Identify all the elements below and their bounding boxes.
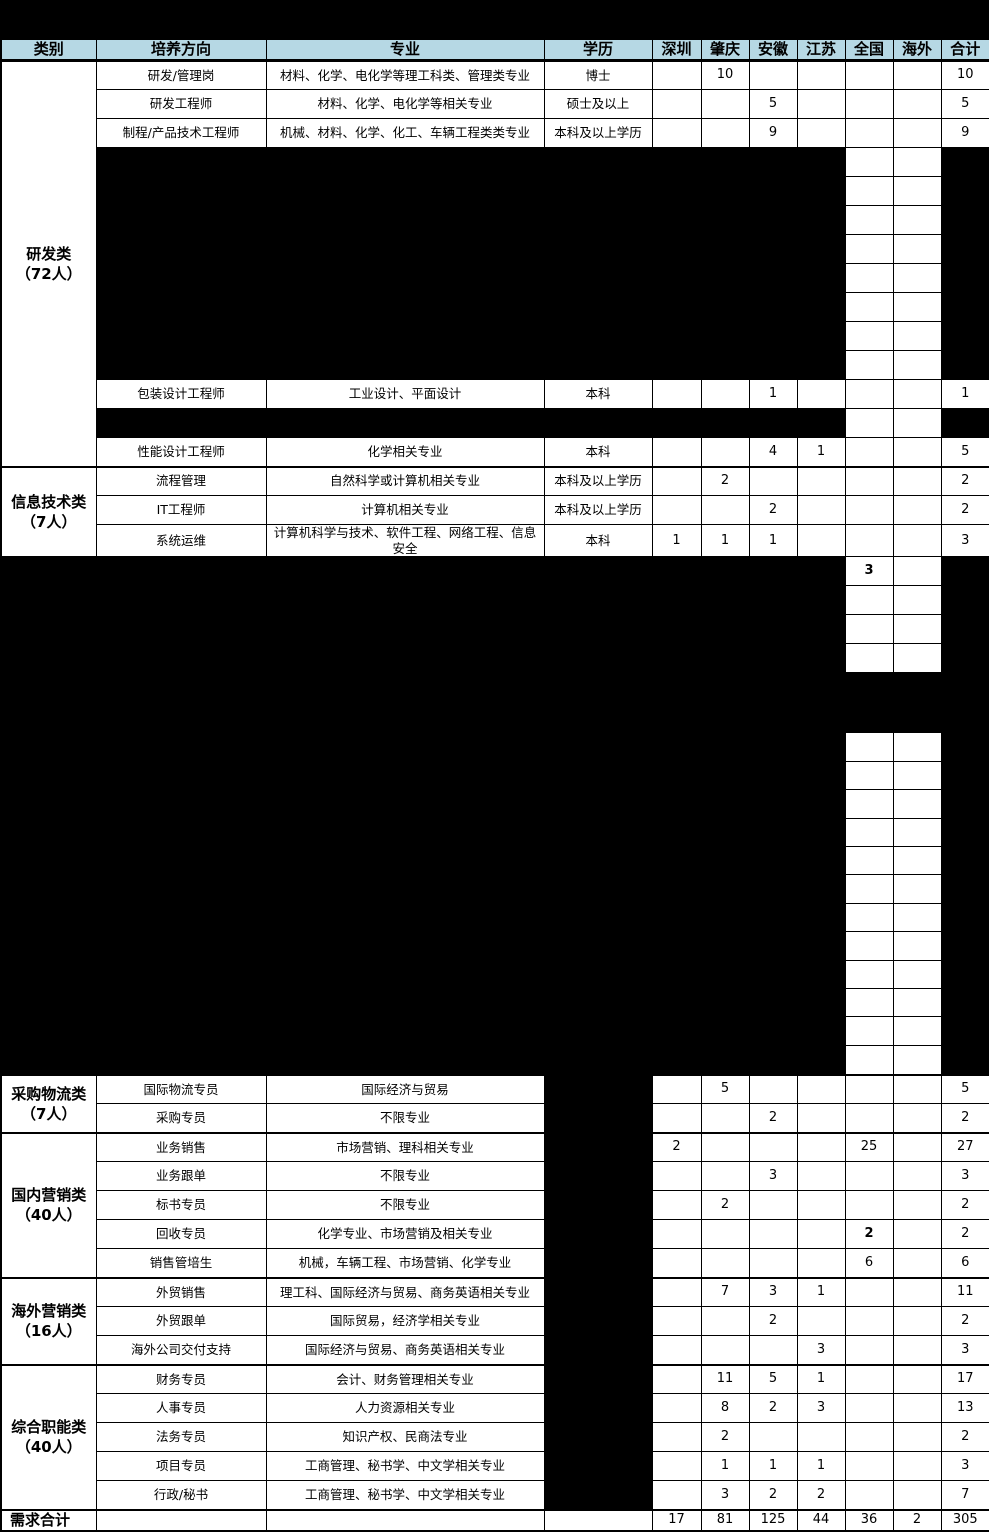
empty-cell	[846, 762, 893, 790]
table-row: 包装设计工程师 工业设计、平面设计 本科 1 1	[1, 380, 989, 409]
cell-total: 9	[941, 119, 989, 148]
cell-anhui	[749, 1133, 797, 1162]
cell-anhui: 5	[749, 1365, 797, 1394]
empty-cell	[894, 819, 941, 847]
table-row: 制程/产品技术工程师 机械、材料、化学、化工、车辆工程类类专业 本科及以上学历 …	[1, 119, 989, 148]
empty-cell	[894, 790, 941, 818]
category-label: 采购物流类	[4, 1084, 94, 1104]
header-cell-anhui: 安徽	[749, 39, 797, 61]
totals-jiangsu: 44	[797, 1510, 845, 1531]
header-cell-degree: 学历	[544, 39, 652, 61]
empty-cell	[266, 1510, 544, 1531]
cell-anhui: 5	[749, 90, 797, 119]
totals-shenzhen: 17	[652, 1510, 701, 1531]
cell-jiangsu	[797, 1191, 845, 1220]
cell-nationwide	[845, 61, 893, 90]
cell-nationwide	[845, 1394, 893, 1423]
table-row: IT工程师 计算机相关专业 本科及以上学历 2 2	[1, 496, 989, 525]
cell-jiangsu	[797, 496, 845, 525]
cell-direction: 法务专员	[96, 1423, 266, 1452]
cell-nationwide	[845, 525, 893, 557]
cell-anhui	[749, 467, 797, 496]
cell-major: 自然科学或计算机相关专业	[266, 467, 544, 496]
empty-cell	[846, 733, 893, 761]
cell-major: 不限专业	[266, 1162, 544, 1191]
cell-jiangsu	[797, 380, 845, 409]
cell-nationwide	[845, 1423, 893, 1452]
cell-major: 材料、化学、电化学等相关专业	[266, 90, 544, 119]
cell-total: 3	[941, 525, 989, 557]
cell-overseas	[893, 119, 941, 148]
cell-overseas	[893, 1452, 941, 1481]
table-row: 采购专员 不限专业 2 2	[1, 1104, 989, 1133]
cell-major: 国际经济与贸易	[266, 1075, 544, 1104]
cell-nationwide	[845, 438, 893, 467]
nationwide-value-cell: 3	[846, 557, 893, 586]
table-row: 研发类 （72人） 研发/管理岗 材料、化学、电化学等理工科类、管理类专业 博士…	[1, 61, 989, 90]
cell-overseas	[893, 1394, 941, 1423]
empty-cell	[846, 264, 893, 293]
cell-total: 2	[941, 1191, 989, 1220]
cell-direction: 采购专员	[96, 1104, 266, 1133]
cell-zhaoqing: 2	[701, 467, 749, 496]
cell-total: 2	[941, 1307, 989, 1336]
header-cell-total: 合计	[941, 39, 989, 61]
category-label: 信息技术类	[4, 492, 94, 512]
empty-cell	[894, 644, 941, 673]
empty-cell	[894, 293, 941, 322]
cell-direction: 国际物流专员	[96, 1075, 266, 1104]
cell-total: 2	[941, 467, 989, 496]
redacted-degree-cell	[544, 1423, 652, 1452]
table-row: 行政/秘书 工商管理、秘书学、中文学相关专业 3 2 2 7	[1, 1481, 989, 1510]
table-row: 海外公司交付支持 国际经济与贸易、商务英语相关专业 3 3	[1, 1336, 989, 1365]
header-cell-shenzhen: 深圳	[652, 39, 701, 61]
empty-cell	[846, 989, 893, 1017]
cell-shenzhen	[652, 119, 701, 148]
cell-direction: 财务专员	[96, 1365, 266, 1394]
cell-direction: IT工程师	[96, 496, 266, 525]
category-cell-it: 信息技术类 （7人）	[1, 467, 96, 557]
cell-nationwide	[845, 467, 893, 496]
cell-shenzhen	[652, 380, 701, 409]
header-cell-nationwide: 全国	[845, 39, 893, 61]
category-count: （72人）	[4, 264, 94, 284]
redacted-degree-cell	[544, 1481, 652, 1510]
category-cell-overseas-sales: 海外营销类 （16人）	[1, 1278, 96, 1365]
nationwide-column-stripe: 3	[845, 557, 893, 1075]
cell-overseas	[893, 380, 941, 409]
header-cell-category: 类别	[1, 39, 96, 61]
empty-cell	[544, 1510, 652, 1531]
cell-degree: 本科	[544, 438, 652, 467]
cell-overseas	[893, 496, 941, 525]
cell-shenzhen	[652, 1162, 701, 1191]
cell-degree: 硕士及以上	[544, 90, 652, 119]
cell-jiangsu	[797, 525, 845, 557]
cell-total: 2	[941, 1423, 989, 1452]
category-label: 海外营销类	[4, 1301, 94, 1321]
cell-degree: 本科	[544, 525, 652, 557]
cell-zhaoqing: 5	[701, 1075, 749, 1104]
cell-direction: 系统运维	[96, 525, 266, 557]
cell-shenzhen	[652, 1336, 701, 1365]
empty-cell	[894, 148, 941, 177]
empty-cell	[894, 264, 941, 293]
cell-anhui	[749, 1423, 797, 1452]
category-label: 研发类	[4, 244, 94, 264]
redacted-degree-cell	[544, 1249, 652, 1278]
overseas-column-stripe	[893, 557, 941, 1075]
empty-cell	[894, 847, 941, 875]
cell-zhaoqing	[701, 1104, 749, 1133]
table-row: 回收专员 化学专业、市场营销及相关专业 2 2	[1, 1220, 989, 1249]
redacted-band	[1, 148, 989, 380]
cell-shenzhen	[652, 1307, 701, 1336]
empty-cell	[894, 615, 941, 644]
cell-total: 3	[941, 1336, 989, 1365]
redacted-block	[941, 409, 989, 438]
empty-cell	[894, 1046, 941, 1073]
cell-jiangsu	[797, 1220, 845, 1249]
cell-jiangsu: 1	[797, 1452, 845, 1481]
cell-anhui	[749, 1220, 797, 1249]
cell-major: 不限专业	[266, 1191, 544, 1220]
cell-jiangsu	[797, 467, 845, 496]
empty-cell	[894, 762, 941, 790]
cell-total: 2	[941, 1220, 989, 1249]
cell-direction: 销售管培生	[96, 1249, 266, 1278]
cell-nationwide	[845, 1452, 893, 1481]
cell-shenzhen	[652, 1365, 701, 1394]
cell-major: 机械，车辆工程、市场营销、化学专业	[266, 1249, 544, 1278]
cell-major: 人力资源相关专业	[266, 1394, 544, 1423]
table-row: 外贸跟单 国际贸易，经济学相关专业 2 2	[1, 1307, 989, 1336]
table-row: 信息技术类 （7人） 流程管理 自然科学或计算机相关专业 本科及以上学历 2 2	[1, 467, 989, 496]
empty-cell	[846, 961, 893, 989]
cell-overseas	[893, 61, 941, 90]
cell-degree: 本科及以上学历	[544, 467, 652, 496]
cell-jiangsu	[797, 119, 845, 148]
empty-cell	[894, 351, 941, 379]
totals-zhaoqing: 81	[701, 1510, 749, 1531]
cell-jiangsu: 1	[797, 438, 845, 467]
empty-cell	[846, 904, 893, 932]
empty-cell	[894, 875, 941, 903]
cell-shenzhen	[652, 438, 701, 467]
empty-cell	[846, 875, 893, 903]
empty-cell	[846, 790, 893, 818]
cell-zhaoqing	[701, 1162, 749, 1191]
empty-cell	[894, 733, 941, 761]
empty-cell	[846, 819, 893, 847]
empty-cell	[846, 932, 893, 960]
category-cell-rnd: 研发类 （72人）	[1, 61, 96, 467]
cell-anhui	[749, 1249, 797, 1278]
cell-degree: 本科	[544, 380, 652, 409]
empty-cell	[894, 557, 941, 586]
cell-direction: 研发/管理岗	[96, 61, 266, 90]
category-count: （40人）	[4, 1205, 94, 1225]
cell-shenzhen	[652, 496, 701, 525]
cell-shenzhen	[652, 1220, 701, 1249]
empty-cell	[894, 932, 941, 960]
cell-nationwide	[845, 1191, 893, 1220]
cell-major: 市场营销、理科相关专业	[266, 1133, 544, 1162]
cell-total: 5	[941, 90, 989, 119]
cell-major: 化学专业、市场营销及相关专业	[266, 1220, 544, 1249]
header-cell-overseas: 海外	[893, 39, 941, 61]
redacted-degree-cell	[544, 1452, 652, 1481]
totals-overseas: 2	[893, 1510, 941, 1531]
redacted-degree-cell	[544, 1133, 652, 1162]
cell-total: 7	[941, 1481, 989, 1510]
cell-shenzhen	[652, 1394, 701, 1423]
cell-direction: 业务跟单	[96, 1162, 266, 1191]
cell-nationwide	[845, 1162, 893, 1191]
cell-jiangsu	[797, 61, 845, 90]
cell-overseas	[893, 1104, 941, 1133]
cell-nationwide	[845, 409, 893, 438]
cell-total: 11	[941, 1278, 989, 1307]
table-row: 海外营销类 （16人） 外贸销售 理工科、国际经济与贸易、商务英语相关专业 7 …	[1, 1278, 989, 1307]
empty-cell	[846, 847, 893, 875]
cell-zhaoqing	[701, 1307, 749, 1336]
cell-jiangsu: 3	[797, 1336, 845, 1365]
cell-jiangsu	[797, 1075, 845, 1104]
cell-overseas	[893, 438, 941, 467]
totals-anhui: 125	[749, 1510, 797, 1531]
cell-zhaoqing: 10	[701, 61, 749, 90]
cell-total: 5	[941, 1075, 989, 1104]
cell-anhui: 1	[749, 1452, 797, 1481]
cell-major: 工商管理、秘书学、中文学相关专业	[266, 1481, 544, 1510]
cell-total: 17	[941, 1365, 989, 1394]
cell-anhui: 2	[749, 1307, 797, 1336]
table-row: 标书专员 不限专业 2 2	[1, 1191, 989, 1220]
redacted-degree-cell	[544, 1162, 652, 1191]
cell-anhui: 2	[749, 1481, 797, 1510]
cell-overseas	[893, 90, 941, 119]
cell-direction: 外贸跟单	[96, 1307, 266, 1336]
cell-jiangsu	[797, 1133, 845, 1162]
cell-zhaoqing: 1	[701, 1452, 749, 1481]
table-row: 法务专员 知识产权、民商法专业 2 2	[1, 1423, 989, 1452]
empty-cell	[846, 351, 893, 379]
category-cell-functions: 综合职能类 （40人）	[1, 1365, 96, 1510]
cell-zhaoqing: 1	[701, 525, 749, 557]
cell-nationwide	[845, 90, 893, 119]
cell-shenzhen	[652, 1191, 701, 1220]
cell-anhui: 2	[749, 1104, 797, 1133]
nationwide-column-stripe	[845, 148, 893, 380]
cell-overseas	[893, 525, 941, 557]
empty-cell	[96, 1510, 266, 1531]
empty-cell	[846, 177, 893, 206]
cell-nationwide: 2	[845, 1220, 893, 1249]
cell-anhui	[749, 1191, 797, 1220]
cell-major: 化学相关专业	[266, 438, 544, 467]
empty-cell	[894, 177, 941, 206]
empty-cell	[846, 293, 893, 322]
cell-anhui: 1	[749, 380, 797, 409]
cell-major: 计算机科学与技术、软件工程、网络工程、信息安全	[266, 525, 544, 557]
cell-overseas	[893, 1191, 941, 1220]
cell-direction: 业务销售	[96, 1133, 266, 1162]
empty-cell	[894, 1017, 941, 1045]
category-count: （40人）	[4, 1437, 94, 1457]
redacted-block	[894, 673, 941, 733]
cell-shenzhen	[652, 61, 701, 90]
cell-total: 27	[941, 1133, 989, 1162]
category-label: 综合职能类	[4, 1417, 94, 1437]
cell-direction: 包装设计工程师	[96, 380, 266, 409]
empty-cell	[846, 1046, 893, 1073]
cell-anhui: 9	[749, 119, 797, 148]
cell-jiangsu: 1	[797, 1278, 845, 1307]
category-count: （7人）	[4, 1104, 94, 1124]
cell-nationwide	[845, 1336, 893, 1365]
cell-shenzhen	[652, 1423, 701, 1452]
table-row: 人事专员 人力资源相关专业 8 2 3 13	[1, 1394, 989, 1423]
cell-nationwide	[845, 1104, 893, 1133]
header-cell-direction: 培养方向	[96, 39, 266, 61]
cell-degree: 本科及以上学历	[544, 496, 652, 525]
cell-zhaoqing	[701, 119, 749, 148]
cell-jiangsu	[797, 90, 845, 119]
totals-label: 需求合计	[1, 1510, 96, 1531]
redacted-degree-cell	[544, 1336, 652, 1365]
cell-shenzhen	[652, 1104, 701, 1133]
cell-zhaoqing: 3	[701, 1481, 749, 1510]
cell-jiangsu	[797, 1104, 845, 1133]
category-count: （7人）	[4, 512, 94, 532]
cell-major: 不限专业	[266, 1104, 544, 1133]
cell-jiangsu: 1	[797, 1365, 845, 1394]
cell-nationwide	[845, 380, 893, 409]
cell-jiangsu	[797, 1307, 845, 1336]
empty-cell	[894, 322, 941, 351]
cell-overseas	[893, 467, 941, 496]
cell-direction: 性能设计工程师	[96, 438, 266, 467]
cell-total: 6	[941, 1249, 989, 1278]
cell-major: 计算机相关专业	[266, 496, 544, 525]
header-cell-major: 专业	[266, 39, 544, 61]
cell-shenzhen	[652, 1452, 701, 1481]
overseas-column-stripe	[893, 148, 941, 380]
recruitment-table: 类别 培养方向 专业 学历 深圳 肇庆 安徽 江苏 全国 海外 合计 研发类 （…	[0, 38, 989, 1532]
cell-major: 材料、化学、电化学等理工科类、管理类专业	[266, 61, 544, 90]
cell-overseas	[893, 409, 941, 438]
table-row: 性能设计工程师 化学相关专业 本科 4 1 5	[1, 438, 989, 467]
cell-total: 3	[941, 1452, 989, 1481]
cell-shenzhen	[652, 1481, 701, 1510]
redacted-degree-cell	[544, 1394, 652, 1423]
cell-nationwide	[845, 1278, 893, 1307]
cell-total: 1	[941, 380, 989, 409]
cell-major: 工业设计、平面设计	[266, 380, 544, 409]
empty-cell	[846, 148, 893, 177]
cell-zhaoqing	[701, 380, 749, 409]
cell-major: 国际经济与贸易、商务英语相关专业	[266, 1336, 544, 1365]
redacted-degree-cell	[544, 1104, 652, 1133]
redacted-degree-cell	[544, 1278, 652, 1307]
table-row: 采购物流类 （7人） 国际物流专员 国际经济与贸易 5 5	[1, 1075, 989, 1104]
redacted-block	[846, 673, 893, 733]
cell-shenzhen: 2	[652, 1133, 701, 1162]
empty-cell	[894, 904, 941, 932]
table-row: 业务跟单 不限专业 3 3	[1, 1162, 989, 1191]
redacted-degree-cell	[544, 1220, 652, 1249]
category-label: 国内营销类	[4, 1185, 94, 1205]
redacted-block	[96, 148, 845, 380]
cell-overseas	[893, 1220, 941, 1249]
cell-overseas	[893, 1365, 941, 1394]
category-cell-domestic-sales: 国内营销类 （40人）	[1, 1133, 96, 1278]
totals-grand-total: 305	[941, 1510, 989, 1531]
cell-major: 知识产权、民商法专业	[266, 1423, 544, 1452]
cell-shenzhen	[652, 1249, 701, 1278]
cell-overseas	[893, 1278, 941, 1307]
cell-overseas	[893, 1133, 941, 1162]
cell-zhaoqing: 2	[701, 1191, 749, 1220]
category-count: （16人）	[4, 1321, 94, 1341]
cell-direction: 外贸销售	[96, 1278, 266, 1307]
cell-zhaoqing	[701, 90, 749, 119]
cell-zhaoqing	[701, 438, 749, 467]
empty-cell	[846, 235, 893, 264]
cell-zhaoqing	[701, 1336, 749, 1365]
empty-cell	[846, 644, 893, 673]
redacted-block	[1, 557, 845, 1075]
cell-major: 理工科、国际经济与贸易、商务英语相关专业	[266, 1278, 544, 1307]
redacted-degree-cell	[544, 1075, 652, 1104]
cell-overseas	[893, 1075, 941, 1104]
cell-nationwide	[845, 1075, 893, 1104]
empty-cell	[894, 961, 941, 989]
empty-cell	[846, 615, 893, 644]
cell-anhui: 2	[749, 496, 797, 525]
totals-nationwide: 36	[845, 1510, 893, 1531]
cell-overseas	[893, 1307, 941, 1336]
cell-direction: 回收专员	[96, 1220, 266, 1249]
cell-overseas	[893, 1336, 941, 1365]
empty-cell	[894, 235, 941, 264]
cell-direction: 行政/秘书	[96, 1481, 266, 1510]
cell-anhui: 3	[749, 1162, 797, 1191]
cell-nationwide: 6	[845, 1249, 893, 1278]
cell-major: 国际贸易，经济学相关专业	[266, 1307, 544, 1336]
cell-total: 13	[941, 1394, 989, 1423]
header-row: 类别 培养方向 专业 学历 深圳 肇庆 安徽 江苏 全国 海外 合计	[1, 39, 989, 61]
empty-cell	[846, 1017, 893, 1045]
cell-anhui: 1	[749, 525, 797, 557]
cell-nationwide	[845, 1365, 893, 1394]
empty-cell	[846, 586, 893, 615]
cell-jiangsu	[797, 1249, 845, 1278]
header-cell-jiangsu: 江苏	[797, 39, 845, 61]
table-row: 销售管培生 机械，车辆工程、市场营销、化学专业 6 6	[1, 1249, 989, 1278]
cell-total: 2	[941, 1104, 989, 1133]
cell-jiangsu	[797, 1423, 845, 1452]
cell-anhui: 4	[749, 438, 797, 467]
cell-anhui	[749, 61, 797, 90]
redacted-block	[941, 148, 989, 380]
redacted-degree-cell	[544, 1191, 652, 1220]
cell-jiangsu	[797, 1162, 845, 1191]
cell-shenzhen	[652, 1075, 701, 1104]
redacted-degree-cell	[544, 1307, 652, 1336]
